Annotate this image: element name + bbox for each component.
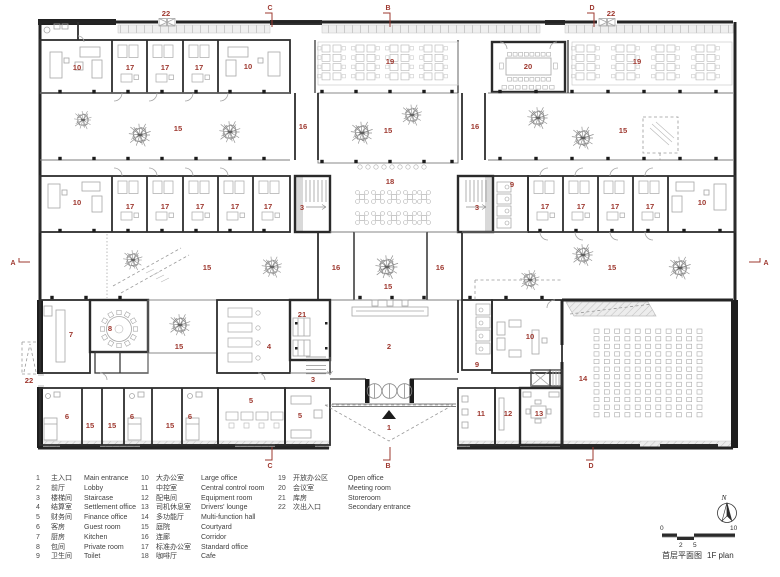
room-number-label: 17 xyxy=(611,202,619,211)
legend-name-en: Drivers' lounge xyxy=(201,503,247,513)
room-number-label: 15 xyxy=(174,124,183,133)
room-number-label: 15 xyxy=(86,421,95,430)
room-number-label: 10 xyxy=(244,62,252,71)
room-number-label: 22 xyxy=(607,9,615,18)
outer-walls xyxy=(36,19,738,449)
legend-name-zh: 结算室 xyxy=(51,503,84,513)
legend-number: 1 xyxy=(36,474,51,484)
legend-item: 1主入口Main entrance xyxy=(36,474,136,484)
section-marker-label: D xyxy=(588,463,593,470)
room-number-label: 17 xyxy=(196,202,204,211)
scale-tick-10: 10 xyxy=(730,525,738,532)
legend-item: 19开放办公区Open office xyxy=(278,474,411,484)
room-number-label: 5 xyxy=(298,411,303,420)
legend-number: 5 xyxy=(36,513,51,523)
room-number-label: 20 xyxy=(524,62,532,71)
room-number-label: 16 xyxy=(332,263,340,272)
room-number-label: 3 xyxy=(475,203,479,212)
room-number-label: 16 xyxy=(299,122,307,131)
room-number-label: 15 xyxy=(608,263,617,272)
legend-name-en: Central control room xyxy=(201,484,264,494)
office-desk-rows xyxy=(226,308,283,428)
legend-number: 20 xyxy=(278,484,293,494)
scale-bar: 0 10 2 5 xyxy=(660,525,738,549)
legend-item: 12配电间Equipment room xyxy=(141,494,264,504)
legend-item: 9卫生间Toilet xyxy=(36,552,136,562)
legend-name-zh: 中控室 xyxy=(156,484,201,494)
section-marker-flag xyxy=(749,258,760,262)
legend-name-en: Multi-function hall xyxy=(201,513,255,523)
legend-item: 21库房Storeroom xyxy=(278,494,411,504)
room-number-label: 9 xyxy=(510,180,514,189)
room-number-label: 19 xyxy=(386,57,394,66)
legend-number: 3 xyxy=(36,494,51,504)
legend-item: 10大办公室Large office xyxy=(141,474,264,484)
legend-name-zh: 大办公室 xyxy=(156,474,201,484)
legend-name-en: Equipment room xyxy=(201,494,252,504)
legend-item: 8包间Private room xyxy=(36,543,136,553)
legend-name-en: Secondary entrance xyxy=(348,503,411,513)
room-number-label: 15 xyxy=(384,282,393,291)
room-number-label: 21 xyxy=(298,310,307,319)
legend-item: 16连廊Corridor xyxy=(141,533,264,543)
legend-number: 6 xyxy=(36,523,51,533)
room-number-label: 17 xyxy=(541,202,549,211)
legend-name-zh: 厨房 xyxy=(51,533,84,543)
legend-item: 14多功能厅Multi-function hall xyxy=(141,513,264,523)
room-number-label: 2 xyxy=(387,342,391,351)
legend-item: 4结算室Settlement office xyxy=(36,503,136,513)
legend-name-zh: 配电间 xyxy=(156,494,201,504)
legend-number: 11 xyxy=(141,484,156,494)
section-marker-label: B xyxy=(385,463,390,470)
room-number-label: 12 xyxy=(504,409,512,418)
legend-item: 3楼梯间Staircase xyxy=(36,494,136,504)
legend-number: 2 xyxy=(36,484,51,494)
legend-number: 9 xyxy=(36,552,51,562)
legend-item: 7厨房Kitchen xyxy=(36,533,136,543)
section-marker-label: B xyxy=(385,5,390,12)
legend-name-zh: 包间 xyxy=(51,543,84,553)
legend-number: 13 xyxy=(141,503,156,513)
legend-name-zh: 开放办公区 xyxy=(293,474,348,484)
legend-number: 22 xyxy=(278,503,293,513)
room-number-label: 17 xyxy=(126,63,134,72)
legend-name-zh: 客房 xyxy=(51,523,84,533)
legend-number: 4 xyxy=(36,503,51,513)
section-marker-label: A xyxy=(763,260,768,267)
room-number-label: 17 xyxy=(231,202,239,211)
legend-number: 14 xyxy=(141,513,156,523)
room-number-label: 17 xyxy=(161,63,169,72)
section-marker-label: C xyxy=(267,463,272,470)
room-number-label: 11 xyxy=(477,409,486,418)
legend-name-en: Kitchen xyxy=(84,533,107,543)
room-number-label: 22 xyxy=(25,376,33,385)
scale-tick-0: 0 xyxy=(660,525,664,532)
room-number-label: 17 xyxy=(264,202,272,211)
room-number-label: 19 xyxy=(633,57,641,66)
floor-plan-drawing: 1017171710192019222222151615161510171717… xyxy=(0,0,780,472)
legend-number: 18 xyxy=(141,552,156,562)
room-number-label: 7 xyxy=(69,330,73,339)
room-number-label: 15 xyxy=(166,421,175,430)
legend-name-zh: 连廊 xyxy=(156,533,201,543)
legend-item: 2前厅Lobby xyxy=(36,484,136,494)
section-marker-label: A xyxy=(10,260,15,267)
legend-number: 8 xyxy=(36,543,51,553)
legend-number: 15 xyxy=(141,523,156,533)
drawing-title-en: 1F plan xyxy=(707,551,734,560)
legend-name-zh: 多功能厅 xyxy=(156,513,201,523)
room-number-label: 3 xyxy=(311,375,315,384)
legend-number: 16 xyxy=(141,533,156,543)
north-arrow: N xyxy=(718,493,737,523)
room-number-label: 10 xyxy=(526,332,534,341)
north-label: N xyxy=(720,493,727,502)
legend-item: 17标准办公室Standard office xyxy=(141,543,264,553)
room-number-label: 8 xyxy=(108,324,112,333)
room-number-label: 16 xyxy=(436,263,444,272)
legend-name-en: Standard office xyxy=(201,543,248,553)
room-number-label: 15 xyxy=(175,342,184,351)
room-number-label: 17 xyxy=(195,63,203,72)
title-block: N 0 10 2 5 首层平面图 1F plan xyxy=(650,486,780,574)
legend-column-3: 19开放办公区Open office20会议室Meeting room21库房S… xyxy=(278,474,411,513)
room-number-label: 17 xyxy=(161,202,169,211)
room-number-label: 15 xyxy=(619,126,628,135)
legend-name-en: Cafe xyxy=(201,552,216,562)
legend-item: 13司机休息室Drivers' lounge xyxy=(141,503,264,513)
legend-name-en: Toilet xyxy=(84,552,100,562)
legend-name-en: Open office xyxy=(348,474,384,484)
legend-name-en: Private room xyxy=(84,543,124,553)
legend-item: 15庭院Courtyard xyxy=(141,523,264,533)
hall-chair-grid xyxy=(594,329,702,417)
room-number-label: 18 xyxy=(386,177,394,186)
floor-plan-sheet: 1017171710192019222222151615161510171717… xyxy=(0,0,780,577)
room-number-label: 17 xyxy=(126,202,134,211)
legend-name-en: Courtyard xyxy=(201,523,232,533)
room-number-label: 10 xyxy=(73,63,81,72)
legend-name-zh: 卫生间 xyxy=(51,552,84,562)
legend-name-zh: 司机休息室 xyxy=(156,503,201,513)
legend-name-zh: 库房 xyxy=(293,494,348,504)
room-number-label: 6 xyxy=(130,412,134,421)
legend-name-zh: 主入口 xyxy=(51,474,84,484)
legend-item: 6客房Guest room xyxy=(36,523,136,533)
legend-column-1: 1主入口Main entrance2前厅Lobby3楼梯间Staircase4结… xyxy=(36,474,136,562)
legend-item: 20会议室Meeting room xyxy=(278,484,411,494)
room-number-label: 15 xyxy=(384,126,393,135)
legend-number: 12 xyxy=(141,494,156,504)
drawing-title-zh: 首层平面图 xyxy=(662,550,702,560)
furniture xyxy=(44,47,726,440)
scale-tick-2: 2 xyxy=(679,542,683,549)
scale-tick-5: 5 xyxy=(693,542,697,549)
legend-name-zh: 前厅 xyxy=(51,484,84,494)
room-number-label: 17 xyxy=(577,202,585,211)
room-number-label: 6 xyxy=(65,412,69,421)
private-room-chairs xyxy=(100,310,137,347)
legend-number: 19 xyxy=(278,474,293,484)
legend-name-zh: 会议室 xyxy=(293,484,348,494)
room-number-label: 15 xyxy=(108,421,117,430)
legend-name-zh: 咖啡厅 xyxy=(156,552,201,562)
dashed-canopies-ramps xyxy=(22,117,678,441)
legend-name-en: Main entrance xyxy=(84,474,128,484)
room-number-label: 1 xyxy=(387,423,392,432)
room-number-label: 10 xyxy=(698,198,706,207)
legend-name-zh: 次出入口 xyxy=(293,503,348,513)
legend-name-zh: 财务间 xyxy=(51,513,84,523)
legend-name-en: Settlement office xyxy=(84,503,136,513)
room-number-label: 16 xyxy=(471,122,479,131)
section-marker-flag xyxy=(19,258,30,262)
legend-name-en: Guest room xyxy=(84,523,121,533)
room-number-label: 3 xyxy=(300,203,304,212)
legend-name-zh: 庭院 xyxy=(156,523,201,533)
room-number-label: 4 xyxy=(267,342,272,351)
legend-name-en: Finance office xyxy=(84,513,127,523)
legend-number: 21 xyxy=(278,494,293,504)
legend-item: 11中控室Central control room xyxy=(141,484,264,494)
room-number-label: 9 xyxy=(475,360,479,369)
legend-number: 10 xyxy=(141,474,156,484)
room-number-label: 14 xyxy=(579,374,588,383)
legend-item: 5财务间Finance office xyxy=(36,513,136,523)
room-number-label: 22 xyxy=(162,9,170,18)
room-number-label: 15 xyxy=(203,263,212,272)
legend-name-en: Large office xyxy=(201,474,237,484)
cafe-tables xyxy=(356,165,431,225)
section-marker-label: C xyxy=(267,5,272,12)
legend-number: 17 xyxy=(141,543,156,553)
legend-column-2: 10大办公室Large office11中控室Central control r… xyxy=(141,474,264,562)
section-marker-flag xyxy=(383,447,390,460)
legend-item: 22次出入口Secondary entrance xyxy=(278,503,411,513)
room-number-label: 17 xyxy=(646,202,654,211)
legend-name-zh: 楼梯间 xyxy=(51,494,84,504)
legend-name-zh: 标准办公室 xyxy=(156,543,201,553)
legend-name-en: Lobby xyxy=(84,484,103,494)
room-number-label: 13 xyxy=(535,409,543,418)
section-marker-label: D xyxy=(589,5,594,12)
legend-item: 18咖啡厅Cafe xyxy=(141,552,264,562)
legend-number: 7 xyxy=(36,533,51,543)
legend-name-en: Staircase xyxy=(84,494,113,504)
room-number-label: 6 xyxy=(188,412,192,421)
legend-name-en: Storeroom xyxy=(348,494,381,504)
room-number-label: 5 xyxy=(249,396,254,405)
legend-name-en: Corridor xyxy=(201,533,226,543)
legend-name-en: Meeting room xyxy=(348,484,391,494)
room-number-label: 10 xyxy=(73,198,81,207)
